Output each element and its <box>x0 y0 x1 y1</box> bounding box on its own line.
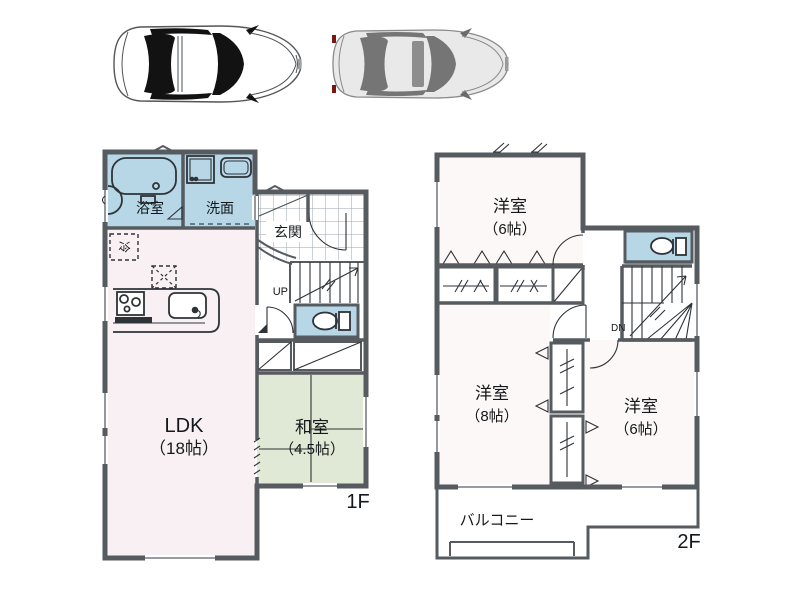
vanity-sink-icon <box>221 158 251 177</box>
floor1-label: 1F <box>346 491 369 513</box>
shutter-marks <box>493 143 547 153</box>
toilet-icon-2f <box>651 238 686 255</box>
entrance-label: 玄関 <box>274 224 302 240</box>
car-top-view-white-icon <box>114 25 302 103</box>
toilet-icon-1f <box>313 312 350 330</box>
toilet-door-swing-1f <box>267 307 293 333</box>
washing-machine-icon <box>187 156 214 183</box>
floor2-plan: 洋室 （6帖） 洋室 （8帖） 洋室 （6帖） DN バルコニー 2F <box>434 143 701 558</box>
ldk-label: LDK <box>165 415 205 437</box>
washitsu-size-label: （4.5帖） <box>279 441 345 458</box>
bedroom-west-size-label: （8帖） <box>465 408 518 425</box>
ldk-size-label: （18帖） <box>149 439 219 458</box>
floorplan-image: 浴室 洗面 玄関 冷 UP LDK （18帖） 和室 （4.5帖） 1F <box>0 0 800 600</box>
bedroom-north-label: 洋室 <box>493 197 527 216</box>
washitsu-label: 和室 <box>295 418 329 437</box>
bathroom-label: 浴室 <box>136 200 164 216</box>
closet <box>497 267 553 303</box>
bedroom-west-label: 洋室 <box>475 384 509 403</box>
stairs-down <box>622 266 692 340</box>
floor1-plan: 浴室 洗面 玄関 冷 UP LDK （18帖） 和室 （4.5帖） 1F <box>102 146 370 561</box>
kitchen-sink-icon <box>169 293 206 318</box>
stairs-down-label: DN <box>611 323 625 334</box>
bedroom-east-label: 洋室 <box>624 397 658 416</box>
floor2-label: 2F <box>677 531 700 553</box>
balcony-label: バルコニー <box>460 512 535 529</box>
bedroom-west-door-swing <box>553 305 586 338</box>
car-top-view-gray-icon <box>332 28 509 100</box>
fridge-label: 冷 <box>117 241 131 253</box>
storage-closets-1f <box>257 340 366 370</box>
washroom-label: 洗面 <box>206 200 234 216</box>
door-stop-mark <box>258 324 267 333</box>
bedroom-north-size-label: （6帖） <box>483 221 536 238</box>
room-ldk <box>105 228 255 558</box>
stairs-up-label: UP <box>273 286 288 298</box>
floorplan-canvas: 浴室 洗面 玄関 冷 UP LDK （18帖） 和室 （4.5帖） 1F <box>0 0 800 600</box>
closet <box>437 267 495 303</box>
stairs-up <box>290 262 366 303</box>
stove-icon <box>117 292 144 315</box>
bedroom-east-size-label: （6帖） <box>614 421 667 438</box>
